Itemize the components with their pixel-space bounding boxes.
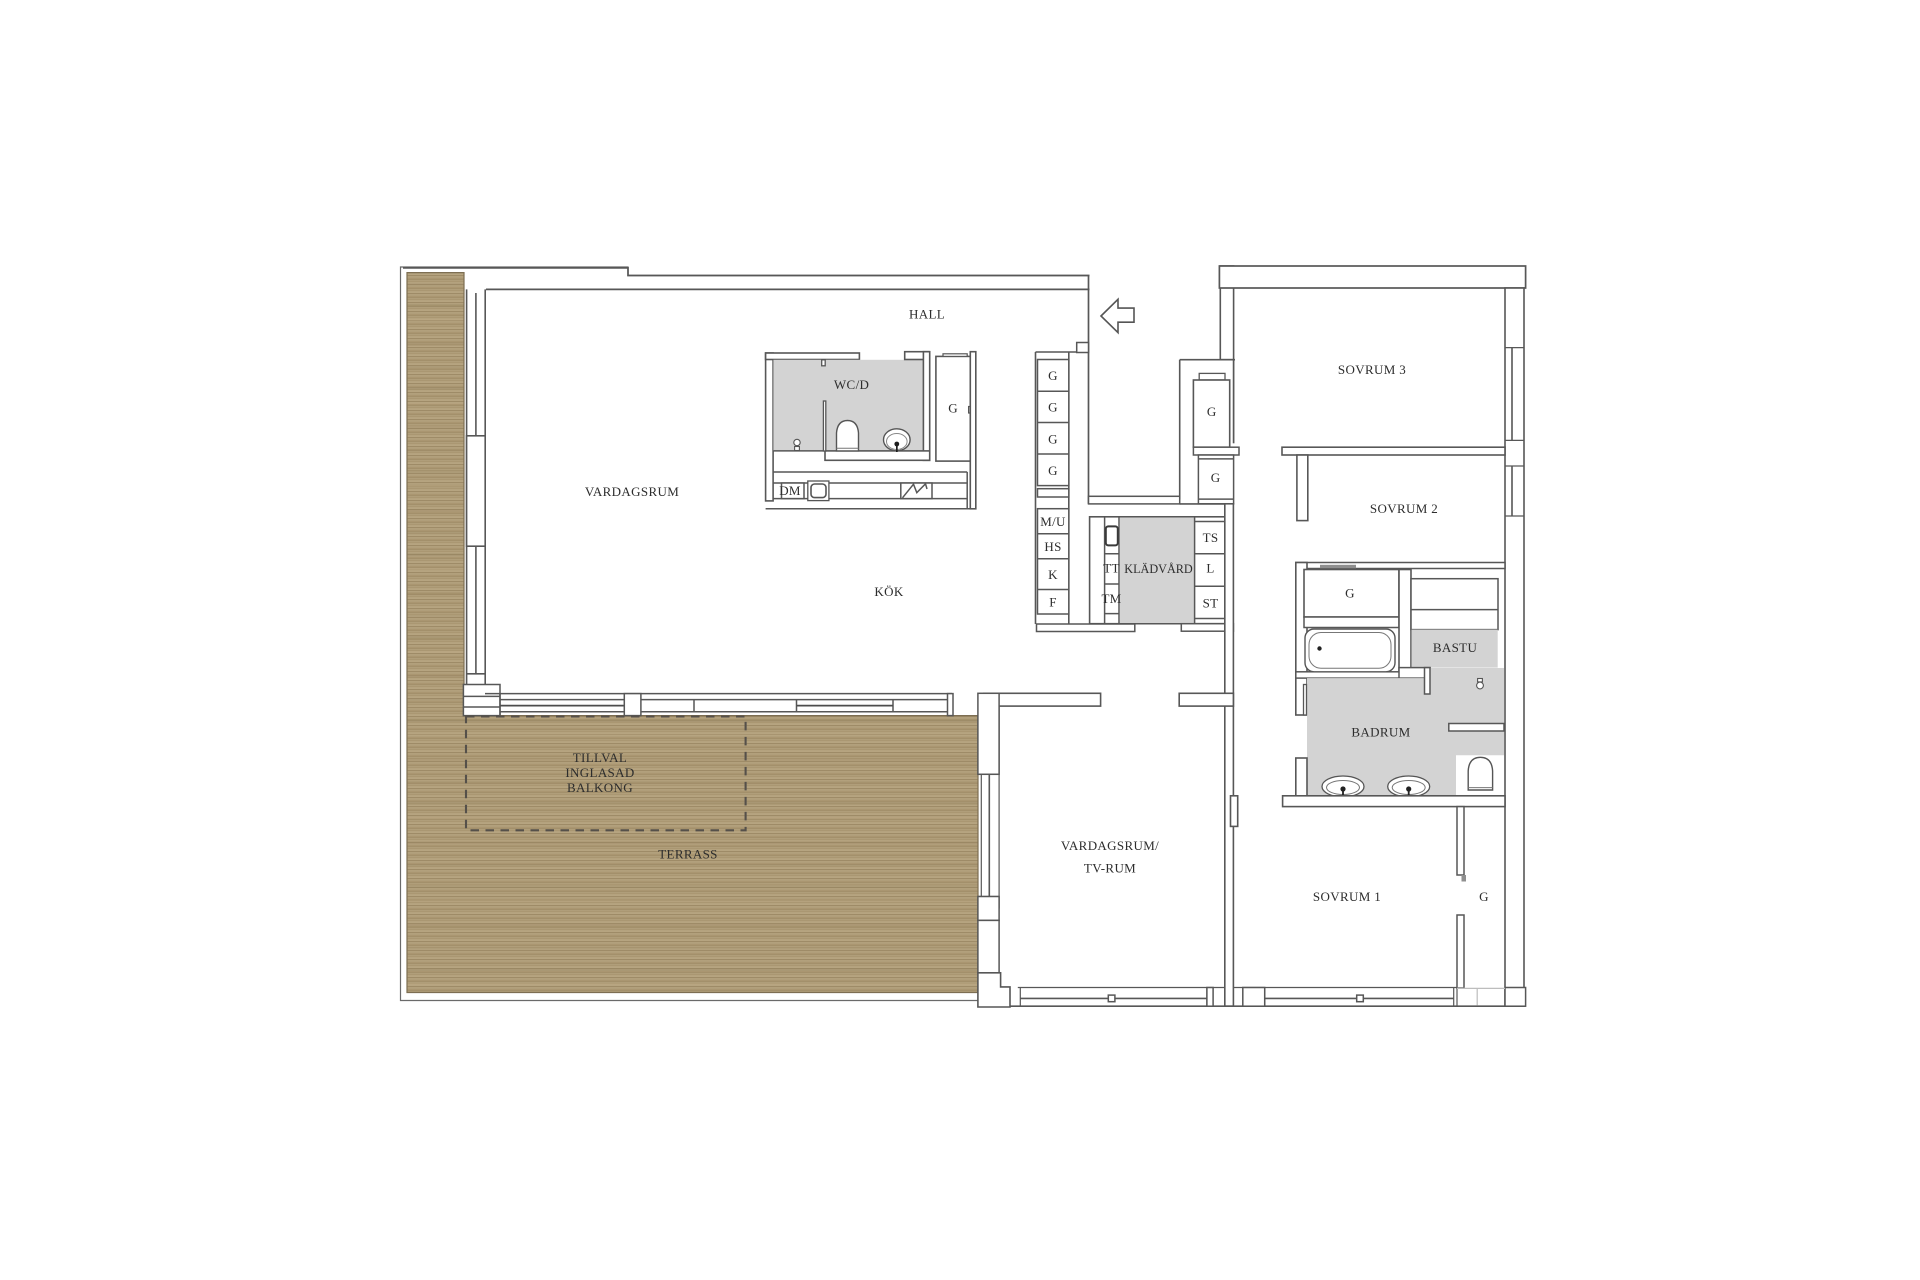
svg-text:TM: TM <box>1101 591 1121 606</box>
svg-text:G: G <box>1207 404 1217 419</box>
svg-text:VARDAGSRUM/: VARDAGSRUM/ <box>1061 838 1159 853</box>
svg-text:HALL: HALL <box>909 307 945 322</box>
svg-text:BASTU: BASTU <box>1433 640 1478 655</box>
svg-text:F: F <box>1049 595 1057 610</box>
svg-text:G: G <box>1345 586 1355 601</box>
svg-text:G: G <box>1211 470 1221 485</box>
svg-text:BALKONG: BALKONG <box>567 780 633 795</box>
svg-text:K: K <box>1048 567 1058 582</box>
svg-text:TERRASS: TERRASS <box>658 846 718 861</box>
svg-text:TT: TT <box>1103 561 1119 576</box>
svg-text:SOVRUM 2: SOVRUM 2 <box>1370 501 1438 516</box>
svg-text:M/U: M/U <box>1040 514 1066 529</box>
svg-text:ST: ST <box>1203 596 1219 611</box>
svg-text:G: G <box>948 401 958 416</box>
svg-text:G: G <box>1479 889 1489 904</box>
svg-text:L: L <box>1206 560 1214 575</box>
svg-text:KÖK: KÖK <box>874 584 903 599</box>
svg-text:G: G <box>1048 400 1058 415</box>
svg-text:G: G <box>1048 432 1058 447</box>
svg-text:G: G <box>1048 463 1058 478</box>
svg-text:INGLASAD: INGLASAD <box>565 765 634 780</box>
svg-text:DM: DM <box>779 483 801 498</box>
svg-text:VARDAGSRUM: VARDAGSRUM <box>585 484 679 499</box>
svg-text:BADRUM: BADRUM <box>1351 725 1410 740</box>
svg-text:SOVRUM 1: SOVRUM 1 <box>1313 889 1381 904</box>
svg-text:TS: TS <box>1203 530 1219 545</box>
svg-text:TILLVAL: TILLVAL <box>573 750 627 765</box>
svg-text:SOVRUM 3: SOVRUM 3 <box>1338 362 1406 377</box>
svg-text:KLÄDVÅRD: KLÄDVÅRD <box>1124 562 1193 576</box>
svg-text:TV-RUM: TV-RUM <box>1084 861 1136 876</box>
svg-text:G: G <box>1048 368 1058 383</box>
svg-text:WC/D: WC/D <box>834 377 869 392</box>
svg-text:HS: HS <box>1044 539 1061 554</box>
